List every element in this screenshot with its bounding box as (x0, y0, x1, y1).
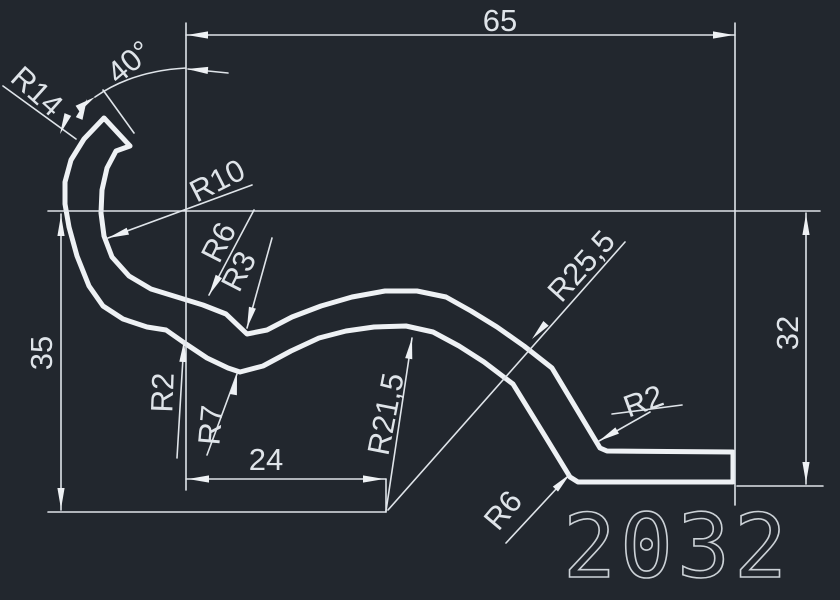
arrow-r3 (244, 307, 256, 329)
arrow-r14-inner (57, 113, 72, 135)
radius-label-r2-right: R2 (619, 378, 668, 424)
arrow-r6-lower (553, 471, 573, 491)
radius-label-r2-left: R2 (144, 372, 180, 413)
radius-leaders (3, 86, 682, 543)
arrow-r10 (107, 228, 129, 242)
dim-label-24: 24 (249, 442, 283, 477)
radius-label-r10: R10 (184, 152, 251, 209)
radius-label-r6-lower: R6 (477, 484, 529, 537)
arrow-32-bottom (802, 462, 809, 483)
extension-lines (48, 23, 823, 512)
dim-label-35: 35 (24, 336, 59, 370)
part-number: 2032 (563, 495, 791, 598)
arrow-35-top (57, 215, 64, 236)
extension-line-oblique-end (103, 90, 134, 133)
arrow-r2-right (597, 427, 619, 444)
arrow-40-left (76, 94, 97, 112)
arrowheads (57, 31, 810, 509)
radius-label-r14: R14 (4, 59, 70, 123)
dimension-lines (61, 35, 806, 510)
radius-label-r25-5: R25,5 (541, 224, 622, 309)
radius-label-r7: R7 (191, 404, 229, 447)
arrow-65-left (187, 31, 208, 38)
arrow-32-top (802, 214, 809, 235)
cad-drawing-canvas: 65 40° R14 R10 R6 R3 R2 R7 24 35 R21,5 R… (0, 0, 840, 600)
dim-label-65: 65 (483, 3, 517, 38)
dim-label-32: 32 (770, 316, 805, 350)
dim-label-40deg: 40° (100, 33, 158, 90)
arrow-r21-5 (405, 337, 415, 359)
arrow-24-right (363, 475, 384, 482)
arrow-35-bottom (57, 488, 64, 509)
arrow-24-left (188, 475, 209, 482)
arrow-65-right (713, 31, 734, 38)
radius-label-r21-5: R21,5 (361, 370, 411, 458)
